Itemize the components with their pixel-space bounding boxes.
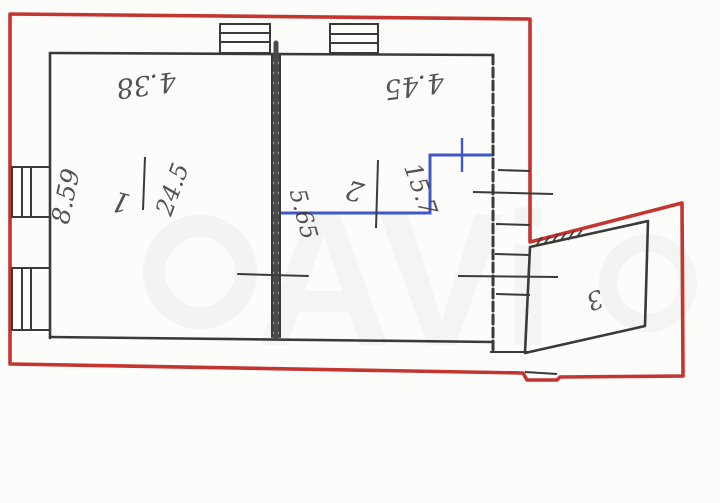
window (330, 24, 378, 53)
window (220, 24, 270, 53)
stair-rung (495, 254, 530, 255)
scanned-floorplan-page: AVi (0, 0, 720, 503)
window (12, 268, 50, 330)
label-divider (143, 157, 145, 210)
windows-top (220, 24, 378, 53)
window (12, 167, 50, 217)
stair-rung (496, 224, 530, 225)
floor-plan-drawing: AVi (0, 0, 720, 503)
room-1-label: 1 24.5 (108, 157, 195, 220)
dim-859: 8.59 (46, 166, 86, 227)
room-1-number: 1 (108, 184, 134, 220)
stair-rung (498, 170, 530, 171)
stair-rung (496, 294, 530, 295)
dim-438: 4.38 (114, 65, 179, 104)
room-1-area: 24.5 (150, 159, 195, 220)
dim-445: 4.45 (382, 66, 447, 105)
windows-left (12, 167, 50, 330)
stair-rung (458, 276, 558, 277)
